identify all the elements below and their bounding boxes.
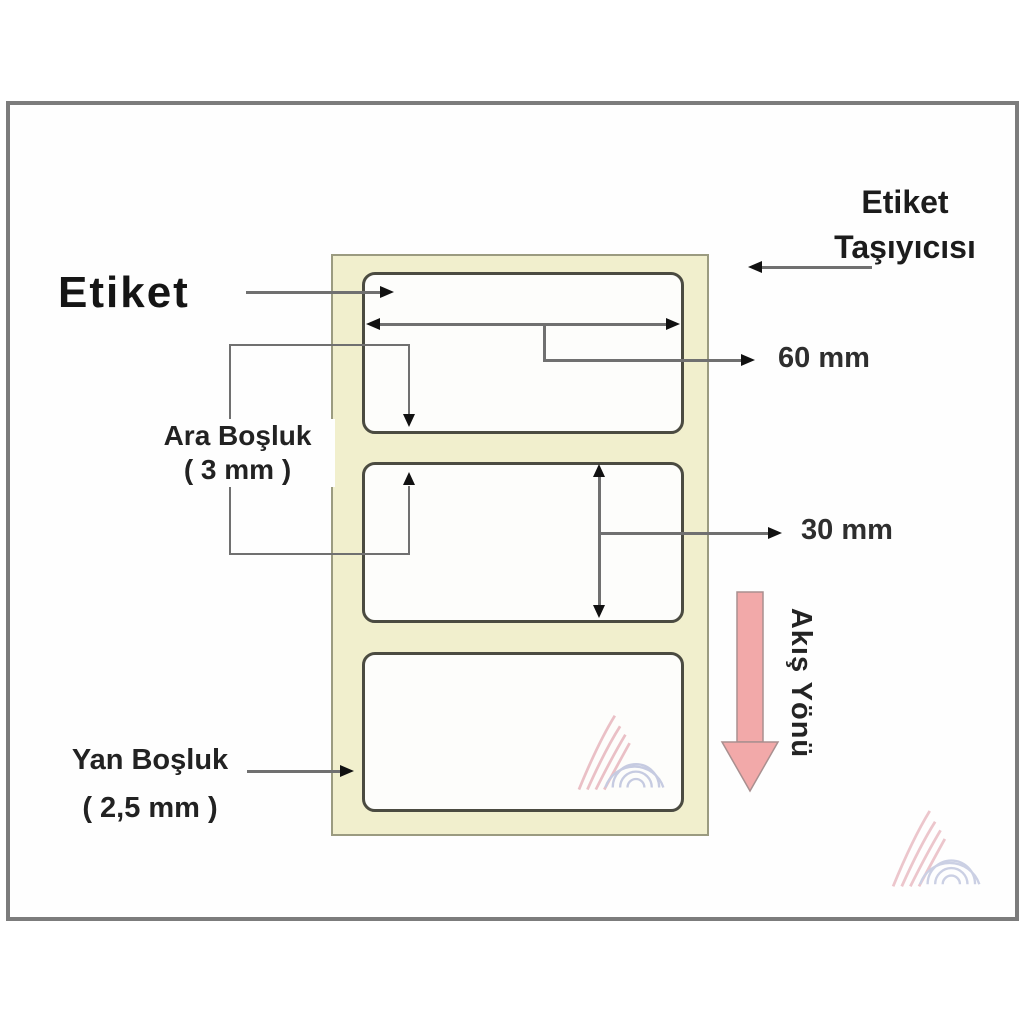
side-margin-callout-line <box>247 770 342 773</box>
up-arrowhead-icon <box>403 472 415 485</box>
carrier-callout-line <box>756 266 872 269</box>
gap-bracket-rise <box>408 486 410 554</box>
left-arrowhead-icon <box>748 261 762 273</box>
etiket-label: Etiket <box>58 268 190 318</box>
logo-watermark <box>570 703 666 798</box>
gap-bracket-top <box>229 344 410 346</box>
gap-label: Ara Boşluk ( 3 mm ) <box>140 419 335 487</box>
side-margin-line1: Yan Boşluk <box>40 736 260 784</box>
width-connector-horizontal <box>543 359 741 362</box>
side-margin-line2: ( 2,5 mm ) <box>40 784 260 832</box>
right-arrowhead-icon <box>741 354 755 366</box>
side-margin-label: Yan Boşluk ( 2,5 mm ) <box>40 736 260 832</box>
height-connector-horizontal <box>598 532 770 535</box>
height-dimension-line <box>598 469 601 614</box>
width-connector-vertical <box>543 323 546 361</box>
flow-direction-arrow-icon <box>712 585 792 797</box>
carrier-label-line2: Taşıyıcısı <box>795 225 1015 270</box>
carrier-label-line1: Etiket <box>795 180 1015 225</box>
width-dimension-line <box>378 323 668 326</box>
height-dimension-value: 30 mm <box>801 514 893 547</box>
width-dimension-value: 60 mm <box>778 342 870 375</box>
label-rect-1 <box>362 272 684 434</box>
down-arrowhead-icon <box>593 605 605 618</box>
left-arrowhead-icon <box>366 318 380 330</box>
carrier-label: Etiket Taşıyıcısı <box>795 180 1015 270</box>
right-arrowhead-icon <box>768 527 782 539</box>
gap-bracket-bottom <box>229 553 410 555</box>
right-arrowhead-icon <box>380 286 394 298</box>
right-arrowhead-icon <box>666 318 680 330</box>
gap-label-line1: Ara Boşluk <box>140 419 335 453</box>
up-arrowhead-icon <box>593 464 605 477</box>
logo-watermark <box>883 798 983 895</box>
down-arrowhead-icon <box>403 414 415 427</box>
flow-direction-label: Akış Yönü <box>783 583 817 783</box>
label-rect-2 <box>362 462 684 623</box>
label-dimension-diagram: Etiket 60 mm Ara Boşluk ( 3 mm ) 30 mm Y… <box>0 0 1024 1024</box>
gap-bracket-drop <box>408 344 410 416</box>
right-arrowhead-icon <box>340 765 354 777</box>
gap-label-line2: ( 3 mm ) <box>140 453 335 487</box>
etiket-callout-line <box>246 291 380 294</box>
